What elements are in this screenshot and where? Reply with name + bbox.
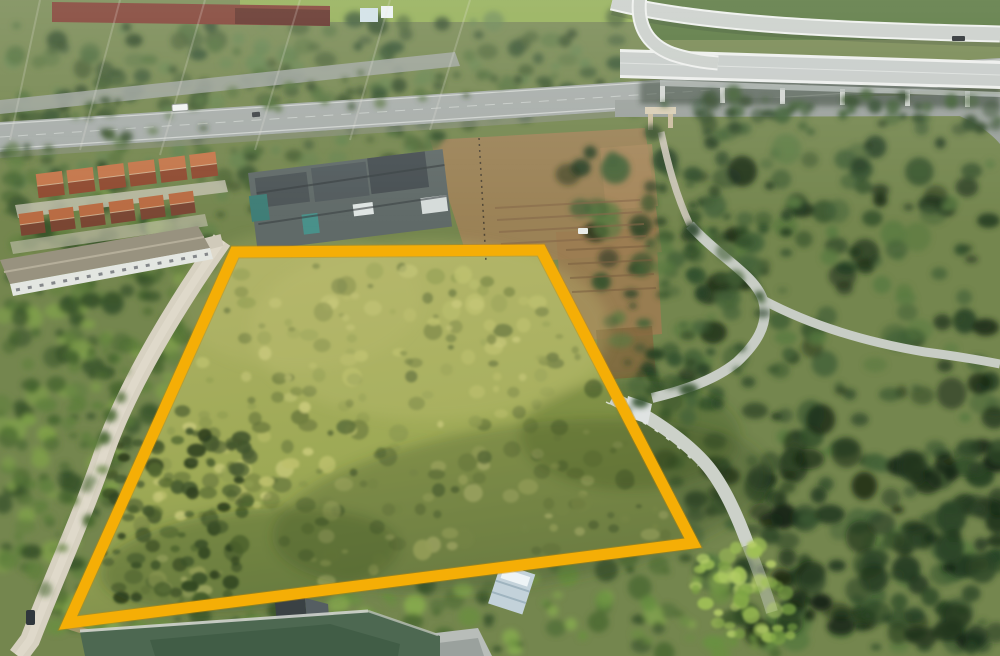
aerial-photo-canvas — [0, 0, 1000, 656]
aerial-photo — [0, 0, 1000, 656]
sun-haze — [0, 0, 1000, 230]
dark-car-side-road — [26, 610, 35, 625]
